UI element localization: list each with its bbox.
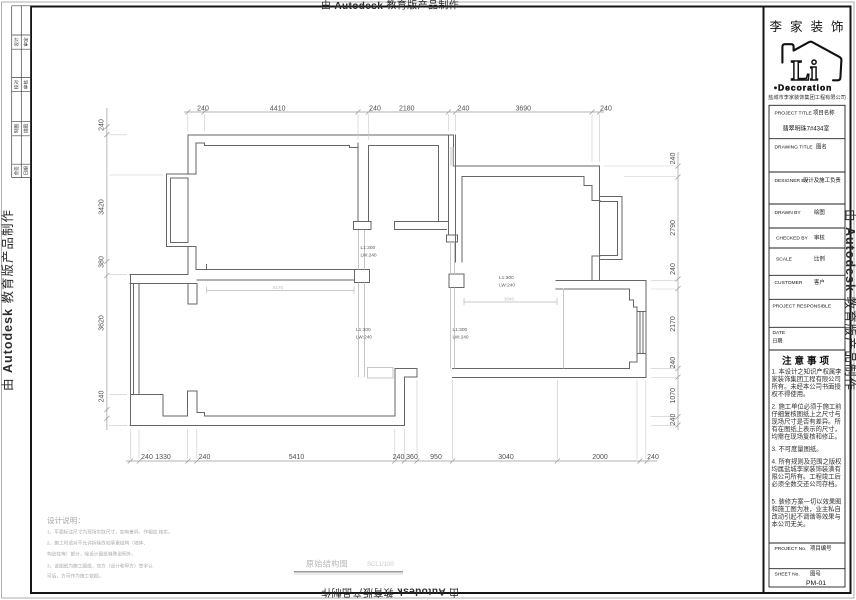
svg-text:CUSTOMER: CUSTOMER xyxy=(775,280,803,286)
svg-text:4. 所有规则及范围之版权: 4. 所有规则及范围之版权 xyxy=(772,457,843,466)
svg-text:1070: 1070 xyxy=(670,388,677,404)
svg-text:项目名称: 项目名称 xyxy=(813,109,835,117)
svg-text:3690: 3690 xyxy=(516,105,532,112)
svg-text:5170: 5170 xyxy=(273,285,284,290)
svg-text:审核: 审核 xyxy=(814,234,825,242)
svg-text:240: 240 xyxy=(670,357,677,369)
svg-text:1330: 1330 xyxy=(155,454,171,461)
svg-text:PROJECT RESPONSIBLE: PROJECT RESPONSIBLE xyxy=(773,304,832,310)
svg-text:2170: 2170 xyxy=(670,316,677,332)
svg-text:380: 380 xyxy=(99,256,106,268)
svg-text:注意事项: 注意事项 xyxy=(782,355,832,367)
svg-text:设计说明：: 设计说明： xyxy=(47,515,85,525)
svg-text:240: 240 xyxy=(141,454,153,461)
svg-text:CHECKED BY: CHECKED BY xyxy=(776,236,809,242)
svg-text:5. 装修方案一切以效果图: 5. 装修方案一切以效果图 xyxy=(772,497,842,506)
svg-text:项目编号: 项目编号 xyxy=(810,544,832,552)
svg-text:改动引起不调谐等效果与: 改动引起不调谐等效果与 xyxy=(772,512,841,521)
svg-text:240: 240 xyxy=(99,391,106,403)
svg-text:3、该图纸为施工图纸，双方（设计和甲方）签字认: 3、该图纸为施工图纸，双方（设计和甲方）签字认 xyxy=(47,563,153,570)
svg-text:240: 240 xyxy=(458,105,470,112)
svg-text:设计及施工负责: 设计及施工负责 xyxy=(803,176,841,184)
svg-text:1、平面标注尺寸为现场实取尺寸，如有差异，作相应 核实。: 1、平面标注尺寸为现场实取尺寸，如有差异，作相应 核实。 xyxy=(47,529,173,536)
svg-text:盐城市李家装饰集团工程有限公司: 盐城市李家装饰集团工程有限公司 xyxy=(768,93,846,101)
svg-text:有在图纸上表示的尺寸，: 有在图纸上表示的尺寸， xyxy=(772,424,841,433)
svg-text:2180: 2180 xyxy=(399,105,415,112)
svg-text:限公司所有。工程竣工后: 限公司所有。工程竣工后 xyxy=(772,472,841,481)
svg-text:本公司无关。: 本公司无关。 xyxy=(772,519,810,528)
svg-text:所有。未经本公司书面授: 所有。未经本公司书面授 xyxy=(772,382,842,391)
svg-text:L1:300: L1:300 xyxy=(361,245,376,251)
svg-text:由 Autodesk 教育版产品制作: 由 Autodesk 教育版产品制作 xyxy=(321,0,459,12)
svg-text:3. 不可度量图纸。: 3. 不可度量图纸。 xyxy=(772,444,823,453)
svg-text:950: 950 xyxy=(430,454,442,461)
svg-text:校对: 校对 xyxy=(13,80,20,90)
svg-text:2、施工时请对不允许拆除改动承重结构（墙体、: 2、施工时请对不允许拆除改动承重结构（墙体、 xyxy=(47,540,148,547)
svg-text:审定: 审定 xyxy=(23,37,30,47)
svg-text:均属盐城李家装饰装潢有: 均属盐城李家装饰装潢有 xyxy=(772,464,841,473)
svg-text:LW:240: LW:240 xyxy=(356,335,372,341)
svg-text:日期:: 日期: xyxy=(773,339,784,345)
svg-text:240: 240 xyxy=(600,105,612,112)
svg-text:240: 240 xyxy=(647,454,659,461)
svg-text:可后，方可作为施工依据。: 可后，方可作为施工依据。 xyxy=(47,573,103,580)
svg-text:翡翠明珠7#434室: 翡翠明珠7#434室 xyxy=(783,125,830,133)
svg-text:SCALE: SCALE xyxy=(776,257,793,263)
svg-text:原始结构图: 原始结构图 xyxy=(306,559,348,569)
svg-text:3620: 3620 xyxy=(99,315,106,331)
svg-text:由 Autodesk 教育版产品制作: 由 Autodesk 教育版产品制作 xyxy=(321,586,459,599)
svg-text:5410: 5410 xyxy=(289,454,305,461)
svg-text:客户: 客户 xyxy=(814,278,825,286)
svg-text:L1:300: L1:300 xyxy=(499,275,514,281)
svg-text:图号: 图号 xyxy=(810,570,821,578)
svg-text:L1:300: L1:300 xyxy=(453,327,468,333)
svg-text:制图: 制图 xyxy=(13,124,20,134)
svg-text:家装饰集团工程有限公司: 家装饰集团工程有限公司 xyxy=(772,374,841,383)
svg-text:PM-01: PM-01 xyxy=(806,580,826,587)
svg-text:仔细复核图纸上之尺寸与: 仔细复核图纸上之尺寸与 xyxy=(772,409,841,418)
svg-text:240: 240 xyxy=(197,105,209,112)
svg-text:LW:240: LW:240 xyxy=(453,335,469,341)
svg-text:SHEET No.: SHEET No. xyxy=(775,572,800,578)
svg-text:1. 本设计之知识产权属李: 1. 本设计之知识产权属李 xyxy=(772,367,843,376)
svg-text:PROJECT No.: PROJECT No. xyxy=(775,546,807,552)
svg-text:现场尺寸是否有差异。所: 现场尺寸是否有差异。所 xyxy=(772,417,842,426)
svg-text:设计: 设计 xyxy=(13,37,20,47)
svg-text:2000: 2000 xyxy=(592,454,608,461)
svg-text:LW:240: LW:240 xyxy=(361,253,377,259)
svg-text:2790: 2790 xyxy=(670,220,677,236)
svg-text:LW:240: LW:240 xyxy=(499,283,515,289)
svg-text:构造柱等）部分，除设计图纸特殊说明外。: 构造柱等）部分，除设计图纸特殊说明外。 xyxy=(47,551,136,558)
svg-text:SCL1/100: SCL1/100 xyxy=(367,562,394,568)
svg-text:会签: 会签 xyxy=(13,166,20,176)
svg-text:360: 360 xyxy=(406,454,418,461)
svg-text:2. 施工单位必须于施工前: 2. 施工单位必须于施工前 xyxy=(772,402,842,411)
svg-text:240: 240 xyxy=(369,105,381,112)
svg-text:李家装饰: 李家装饰 xyxy=(769,19,851,34)
svg-text:240: 240 xyxy=(393,454,405,461)
svg-text:•Decoration: •Decoration xyxy=(774,83,832,93)
svg-text:3420: 3420 xyxy=(99,199,106,215)
svg-text:由 Autodesk 教育版产品制作: 由 Autodesk 教育版产品制作 xyxy=(0,209,15,391)
svg-text:240: 240 xyxy=(199,454,211,461)
svg-text:描图: 描图 xyxy=(23,124,30,134)
svg-text:3040: 3040 xyxy=(498,454,514,461)
svg-text:240: 240 xyxy=(670,414,677,426)
svg-text:240: 240 xyxy=(670,263,677,275)
svg-text:PROJECT TITLE: PROJECT TITLE xyxy=(775,111,813,117)
svg-text:图名: 图名 xyxy=(816,143,827,151)
svg-text:权不得使用。: 权不得使用。 xyxy=(772,389,810,398)
svg-text:审核: 审核 xyxy=(23,80,30,90)
svg-text:3040: 3040 xyxy=(504,297,515,302)
svg-text:240: 240 xyxy=(99,119,106,131)
svg-text:DRAWING TITLE: DRAWING TITLE xyxy=(775,145,814,151)
svg-text:240: 240 xyxy=(670,153,677,165)
svg-text:均需在现场复核和修正。: 均需在现场复核和修正。 xyxy=(772,432,841,441)
svg-text:和施工图为准，业主私自: 和施工图为准，业主私自 xyxy=(772,504,841,513)
svg-text:DATE: DATE xyxy=(773,330,786,336)
svg-text:DRAWN BY: DRAWN BY xyxy=(775,210,802,216)
svg-text:必须全数交还公司存档。: 必须全数交还公司存档。 xyxy=(772,479,841,488)
svg-text:比例: 比例 xyxy=(814,255,825,263)
svg-text:绘图: 绘图 xyxy=(814,208,825,216)
svg-text:L1:300: L1:300 xyxy=(356,327,371,333)
svg-text:4410: 4410 xyxy=(270,105,286,112)
